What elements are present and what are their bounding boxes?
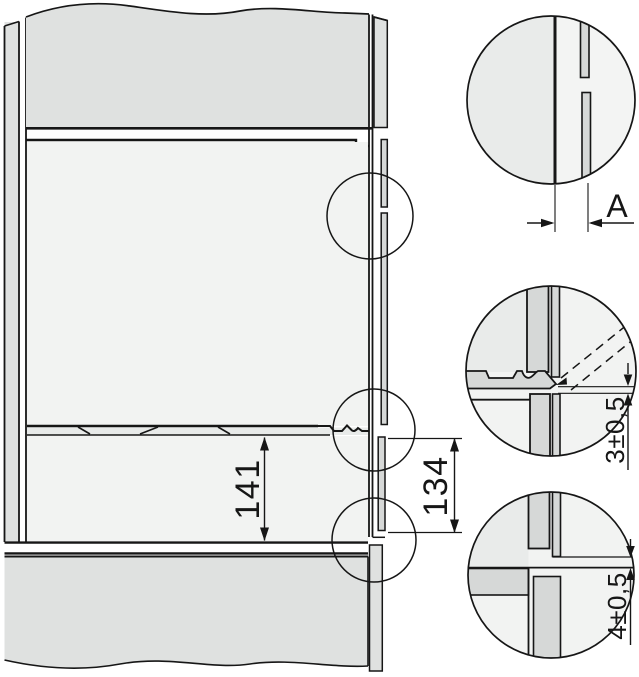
bottom-shelf: [5, 543, 369, 554]
dim-label-3: 3±0,5: [600, 396, 630, 463]
dim-label-4: 4±0,5: [602, 572, 632, 639]
section-drawing-svg: 141 134 A: [0, 0, 639, 677]
oven-niche-interior: [27, 142, 368, 542]
dim-label-A: A: [606, 188, 628, 224]
cabinet-left-side-wall: [5, 18, 27, 543]
dimension-front-cutout: 134: [388, 438, 462, 533]
main-section-view: 141 134: [5, 4, 463, 671]
installation-drawing: 141 134 A: [0, 0, 639, 677]
detail-circle-bottom: 4±0,5: [467, 490, 638, 660]
detail-circle-middle: 3±0,5: [465, 284, 639, 470]
carcase-front-edge: [369, 15, 373, 538]
plinth-front-strip: [370, 537, 386, 671]
dim-label-134: 134: [417, 455, 455, 516]
detail-circle-top: A: [466, 13, 637, 232]
dimension-overhang-A: A: [527, 183, 634, 232]
top-panel: [5, 4, 388, 146]
appliance-front-strip: [378, 140, 387, 531]
dim-label-141: 141: [229, 458, 267, 519]
lower-cabinet-body: [5, 557, 369, 669]
